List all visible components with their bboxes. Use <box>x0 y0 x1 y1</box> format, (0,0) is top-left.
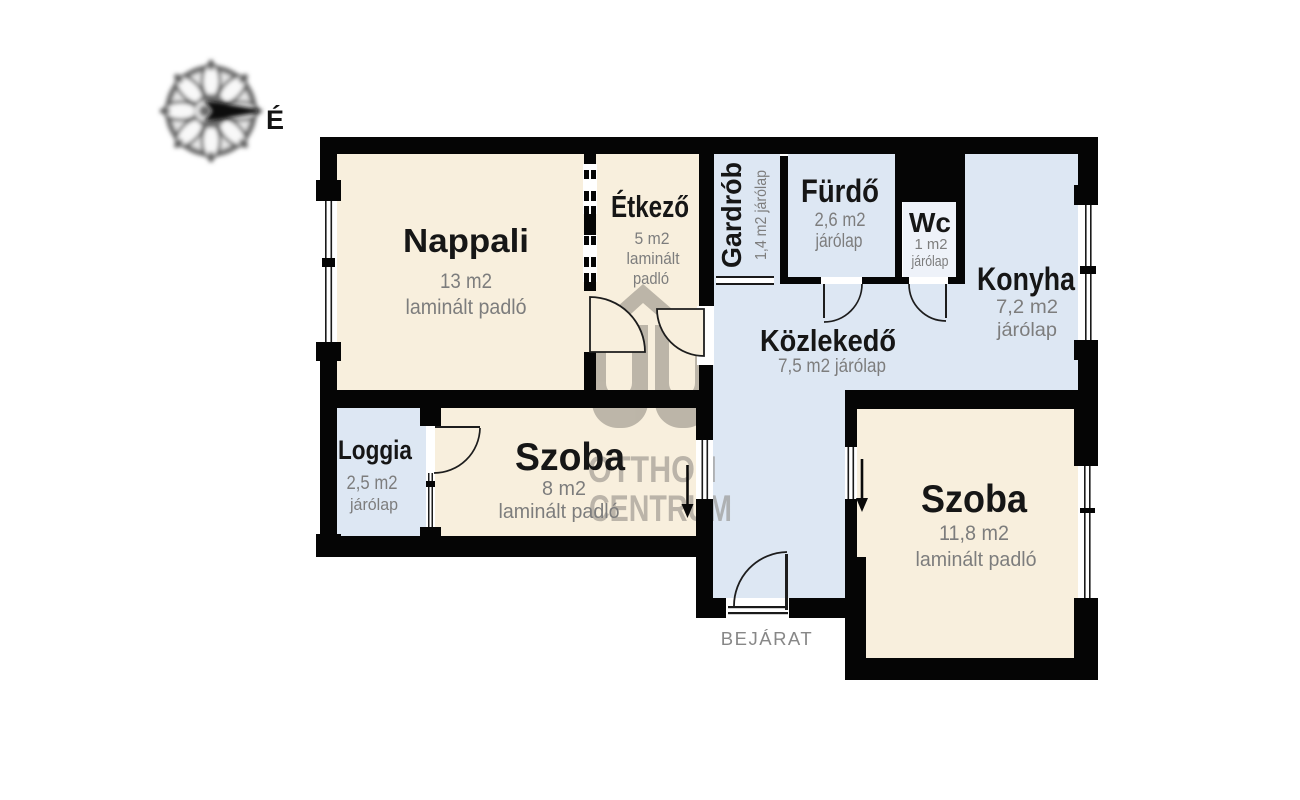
svg-text:11,8 m2: 11,8 m2 <box>939 522 1009 545</box>
svg-text:7,5 m2 járólap: 7,5 m2 járólap <box>778 355 886 377</box>
svg-text:laminált padló: laminált padló <box>406 296 527 319</box>
svg-text:2,6 m2: 2,6 m2 <box>815 210 866 231</box>
svg-text:Közlekedő: Közlekedő <box>760 323 896 358</box>
svg-text:laminált padló: laminált padló <box>499 500 620 523</box>
svg-text:járólap: járólap <box>815 231 863 252</box>
svg-text:Gardrób: Gardrób <box>716 162 747 268</box>
svg-text:járólap: járólap <box>349 496 398 514</box>
svg-text:Konyha: Konyha <box>977 261 1075 297</box>
svg-text:1 m2: 1 m2 <box>915 237 948 253</box>
svg-text:Fürdő: Fürdő <box>801 173 879 209</box>
svg-text:2,5 m2: 2,5 m2 <box>347 473 398 494</box>
svg-text:1,4 m2 járólap: 1,4 m2 járólap <box>753 170 770 260</box>
svg-text:járólap: járólap <box>911 254 949 270</box>
svg-text:Étkező: Étkező <box>611 189 689 224</box>
svg-text:8 m2: 8 m2 <box>542 478 586 500</box>
svg-text:Nappali: Nappali <box>403 222 529 259</box>
svg-text:Wc: Wc <box>909 207 951 238</box>
svg-text:padló: padló <box>633 270 669 288</box>
svg-text:BEJÁRAT: BEJÁRAT <box>721 628 813 649</box>
svg-text:É: É <box>266 104 284 135</box>
svg-text:Szoba: Szoba <box>921 478 1027 521</box>
svg-text:7,2 m2: 7,2 m2 <box>996 296 1058 318</box>
svg-text:laminált padló: laminált padló <box>916 548 1037 571</box>
svg-text:13 m2: 13 m2 <box>440 270 492 293</box>
svg-text:laminált: laminált <box>627 250 680 268</box>
svg-text:járólap: járólap <box>996 319 1057 341</box>
svg-text:Loggia: Loggia <box>338 435 413 465</box>
svg-text:5 m2: 5 m2 <box>635 230 670 248</box>
svg-text:Szoba: Szoba <box>515 436 625 479</box>
